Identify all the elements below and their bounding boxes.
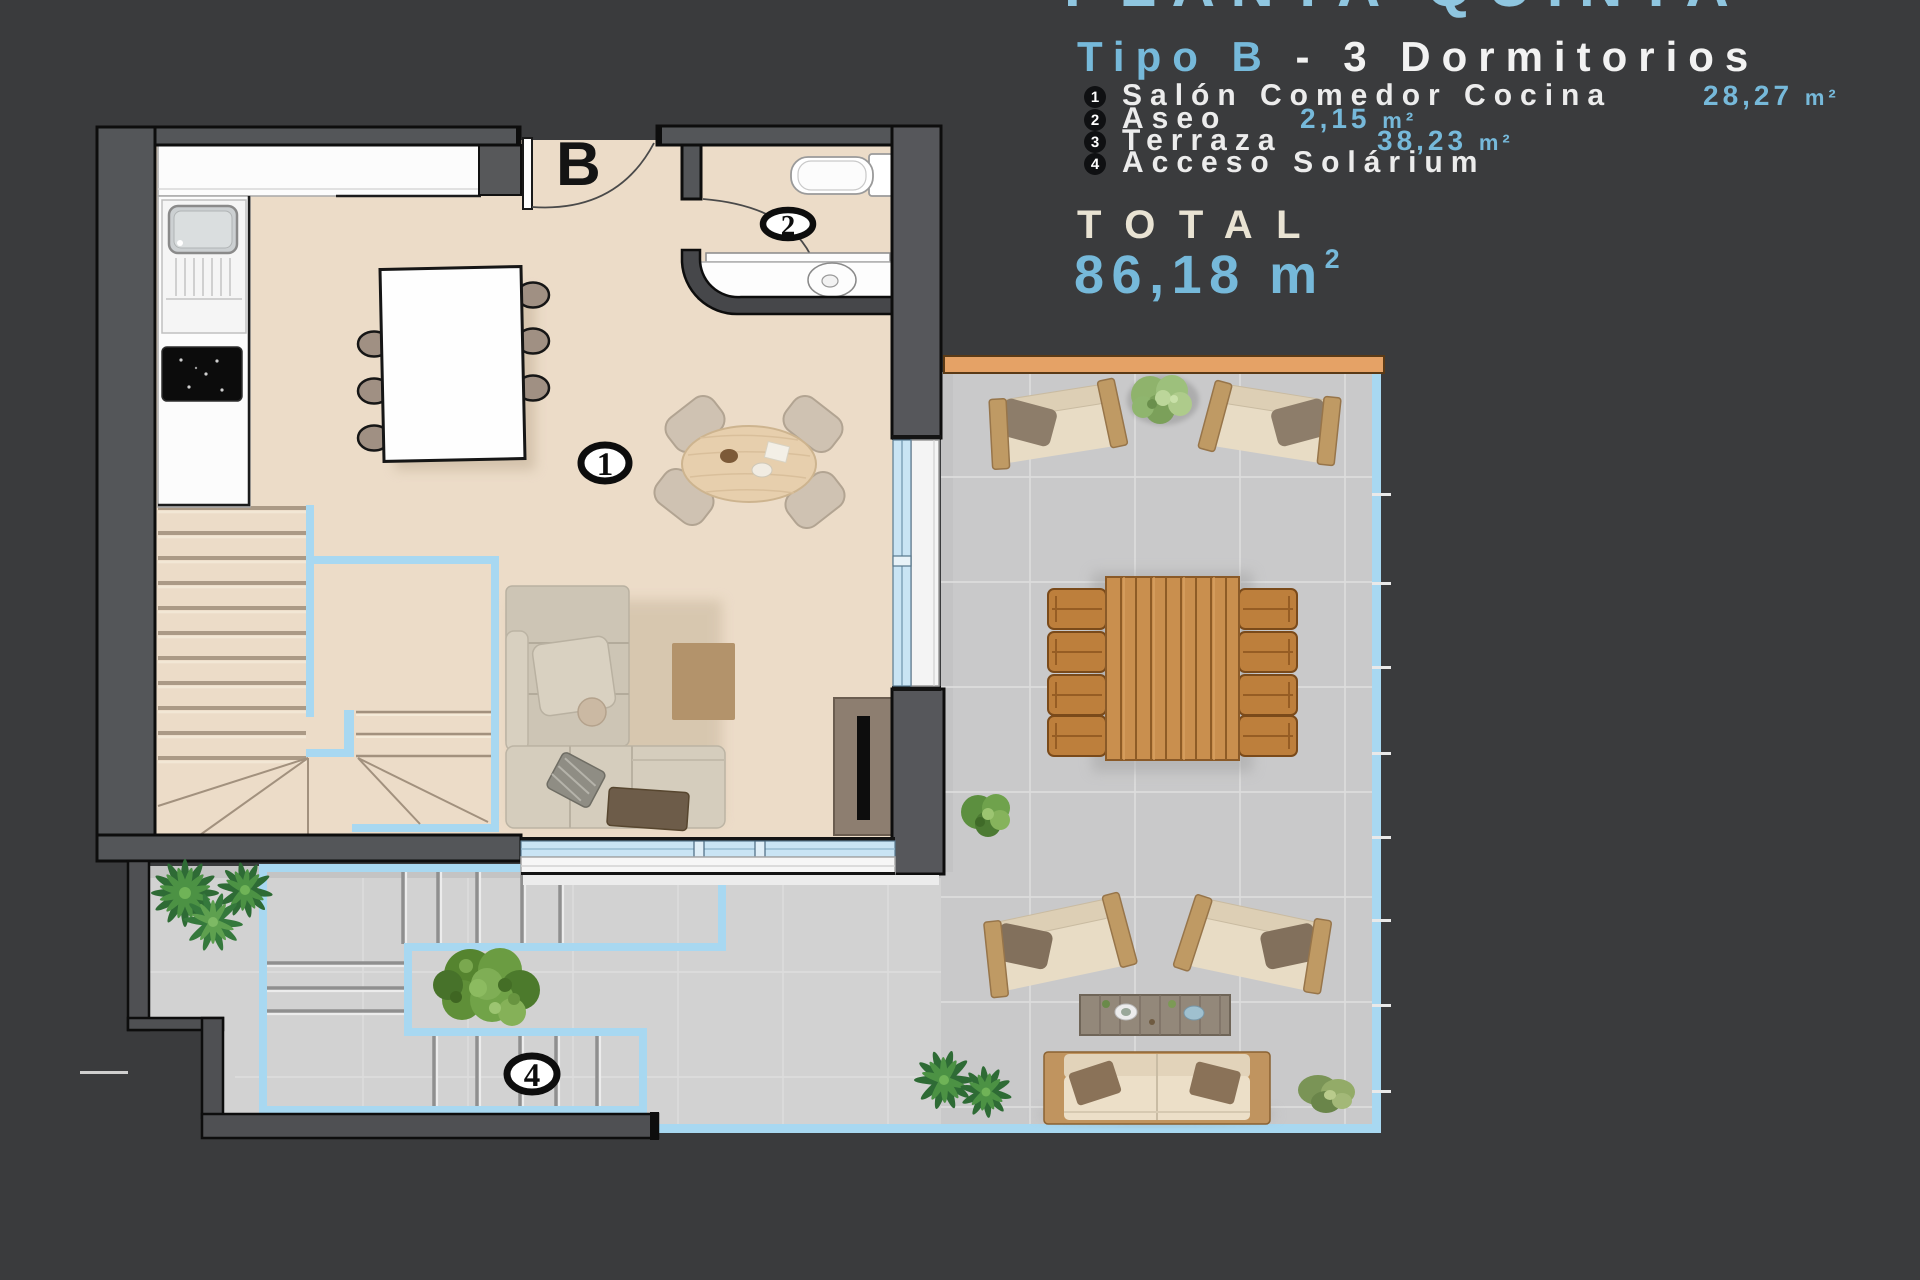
svg-text:2: 2 <box>781 210 796 242</box>
svg-text:28,27 m²: 28,27 m² <box>1703 80 1840 111</box>
svg-text:3: 3 <box>1091 134 1099 151</box>
svg-text:1: 1 <box>1091 89 1099 106</box>
svg-text:2: 2 <box>1091 112 1099 129</box>
svg-text:1: 1 <box>597 447 614 483</box>
svg-text:TOTAL: TOTAL <box>1077 203 1324 247</box>
svg-text:B: B <box>556 130 601 199</box>
svg-text:86,18 m2: 86,18 m2 <box>1074 244 1347 305</box>
svg-text:Acceso Solárium: Acceso Solárium <box>1122 146 1485 179</box>
svg-text:Tipo B - 3 Dormitorios: Tipo B - 3 Dormitorios <box>1077 33 1759 80</box>
svg-text:4: 4 <box>1091 156 1100 173</box>
svg-text:PLANTA QUINTA: PLANTA QUINTA <box>1064 0 1744 19</box>
svg-text:4: 4 <box>524 1058 541 1094</box>
